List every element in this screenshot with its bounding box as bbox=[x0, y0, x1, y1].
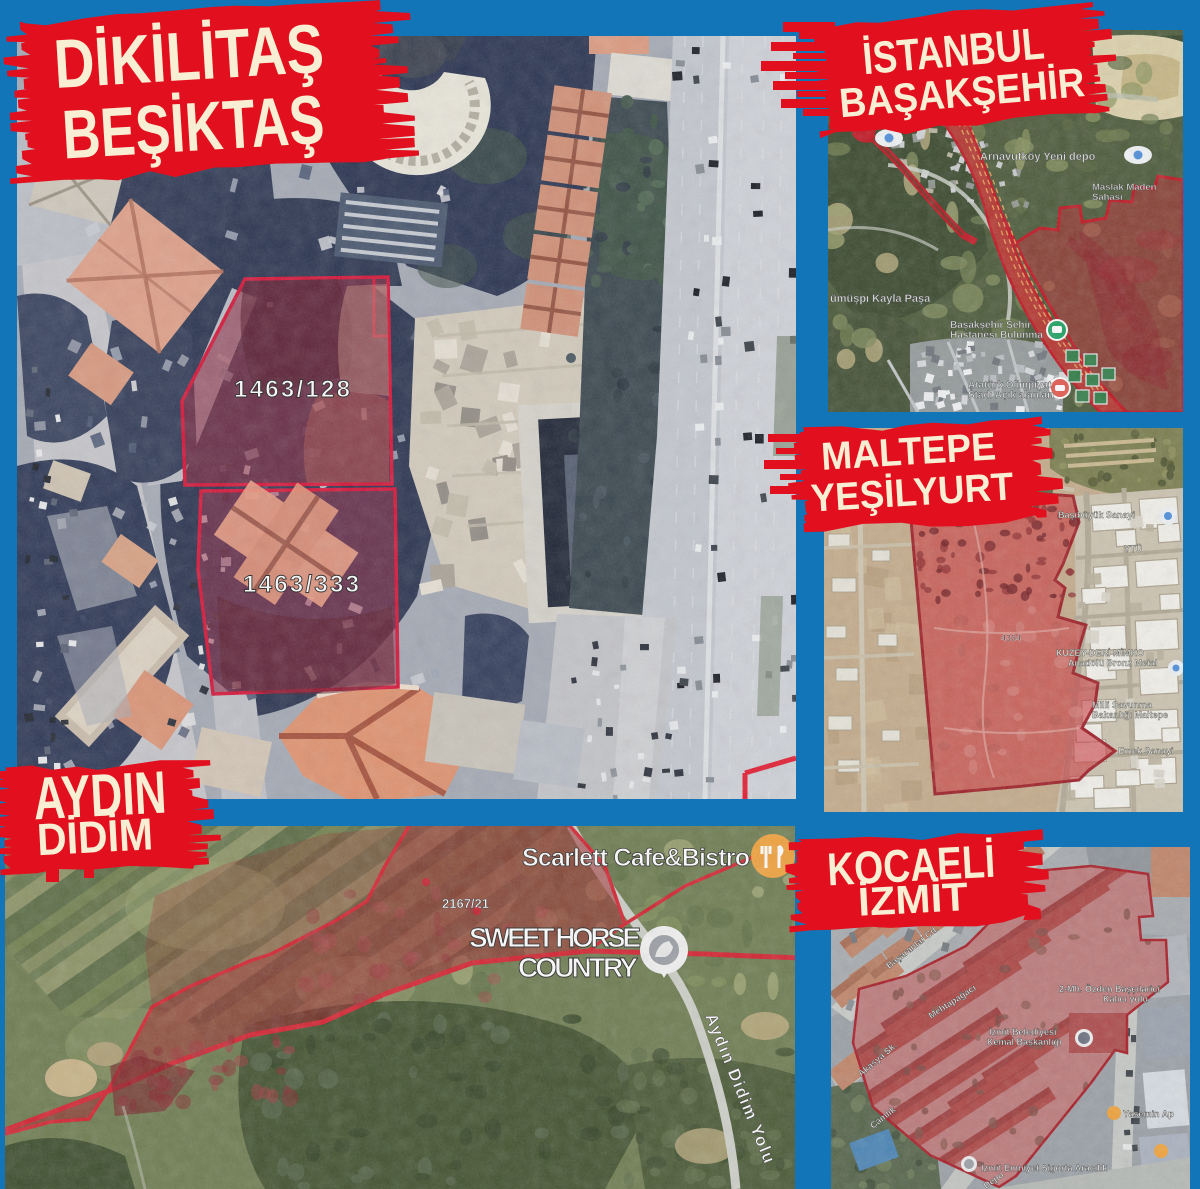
svg-text:İZMİT: İZMİT bbox=[857, 875, 969, 925]
svg-text:DİDİM: DİDİM bbox=[36, 808, 155, 865]
svg-text:BEŞİKTAŞ: BEŞİKTAŞ bbox=[60, 81, 326, 174]
